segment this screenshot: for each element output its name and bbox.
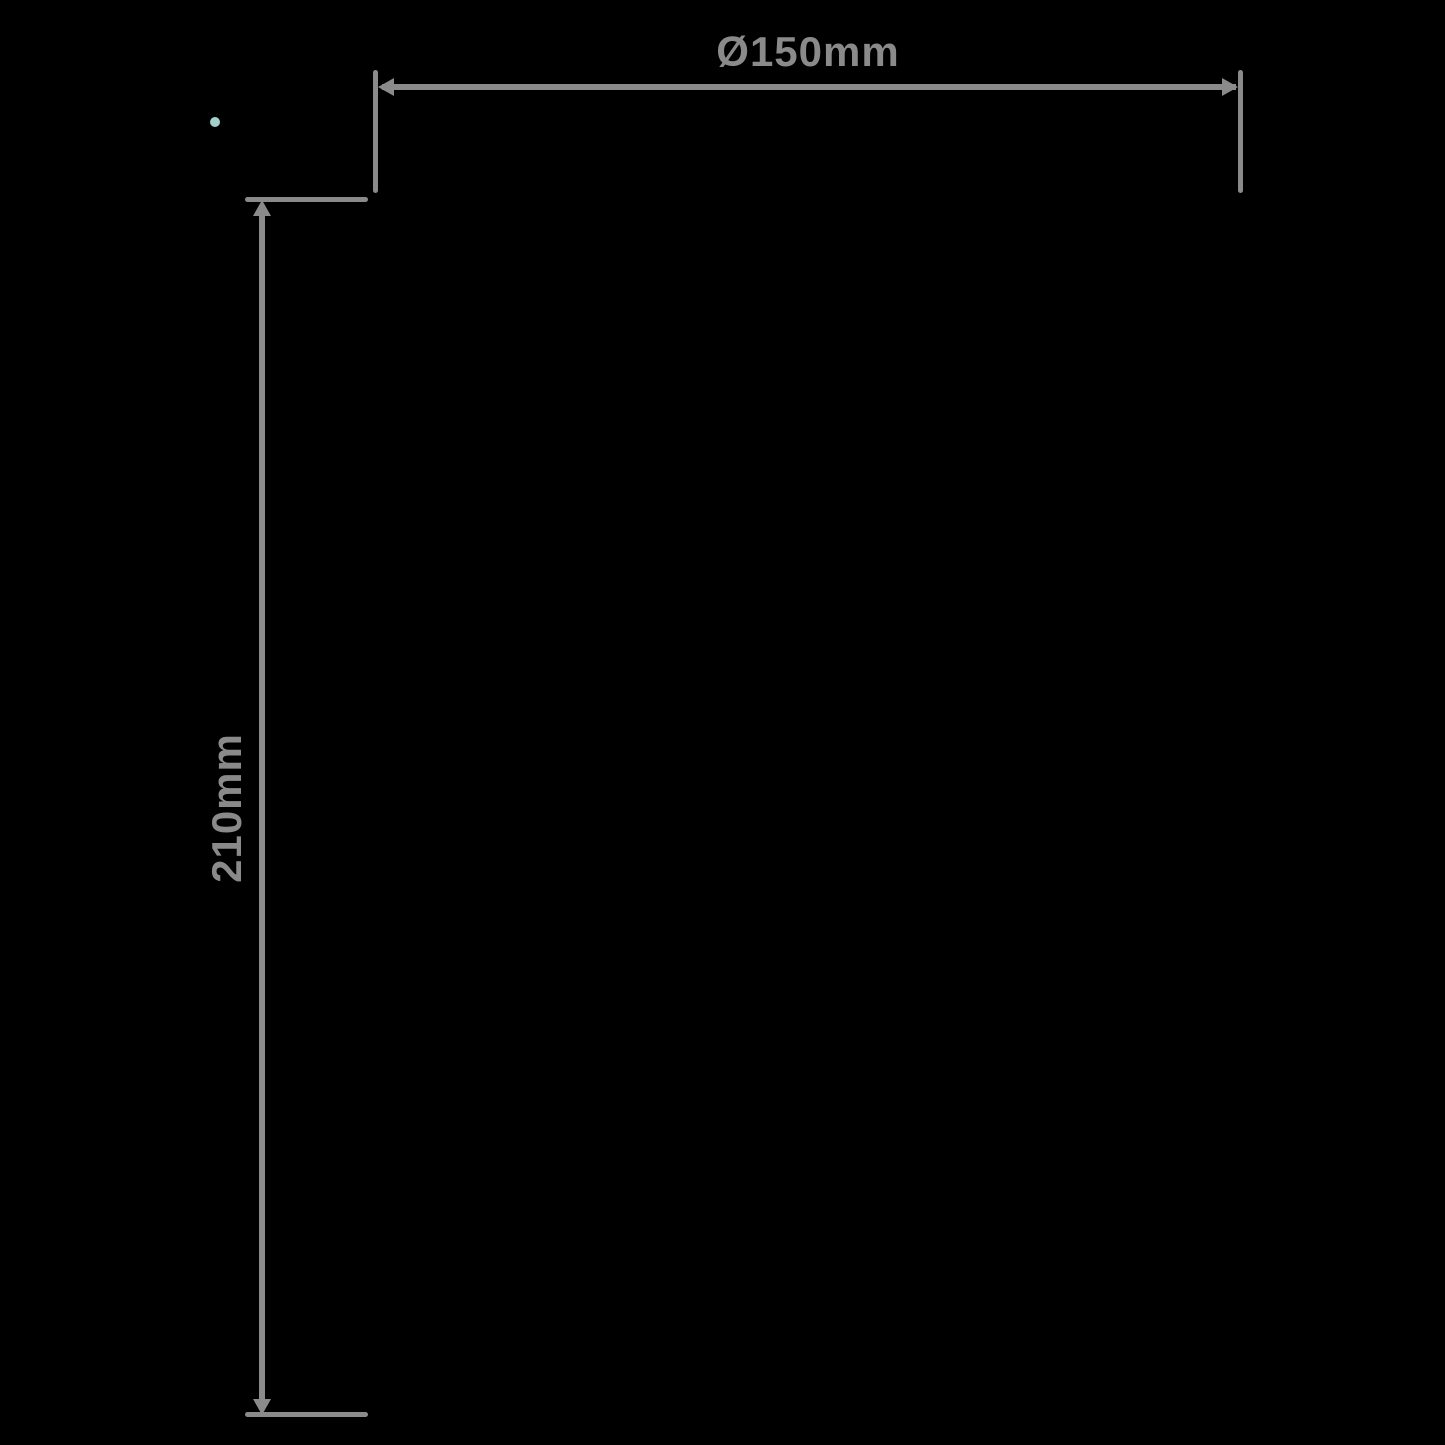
diameter-label: Ø150mm — [378, 31, 1238, 73]
dimension-diagram: Ø150mm 210mm — [0, 0, 1445, 1445]
accent-dot — [210, 117, 220, 127]
arrowhead-right-icon — [1222, 78, 1238, 96]
height-label: 210mm — [205, 608, 249, 1008]
diameter-extension-line-right — [1238, 70, 1243, 193]
arrowhead-left-icon — [378, 78, 394, 96]
arrowhead-up-icon — [253, 200, 271, 216]
height-dimension-line — [259, 207, 265, 1408]
arrowhead-down-icon — [253, 1399, 271, 1415]
diameter-dimension-line — [382, 84, 1236, 90]
